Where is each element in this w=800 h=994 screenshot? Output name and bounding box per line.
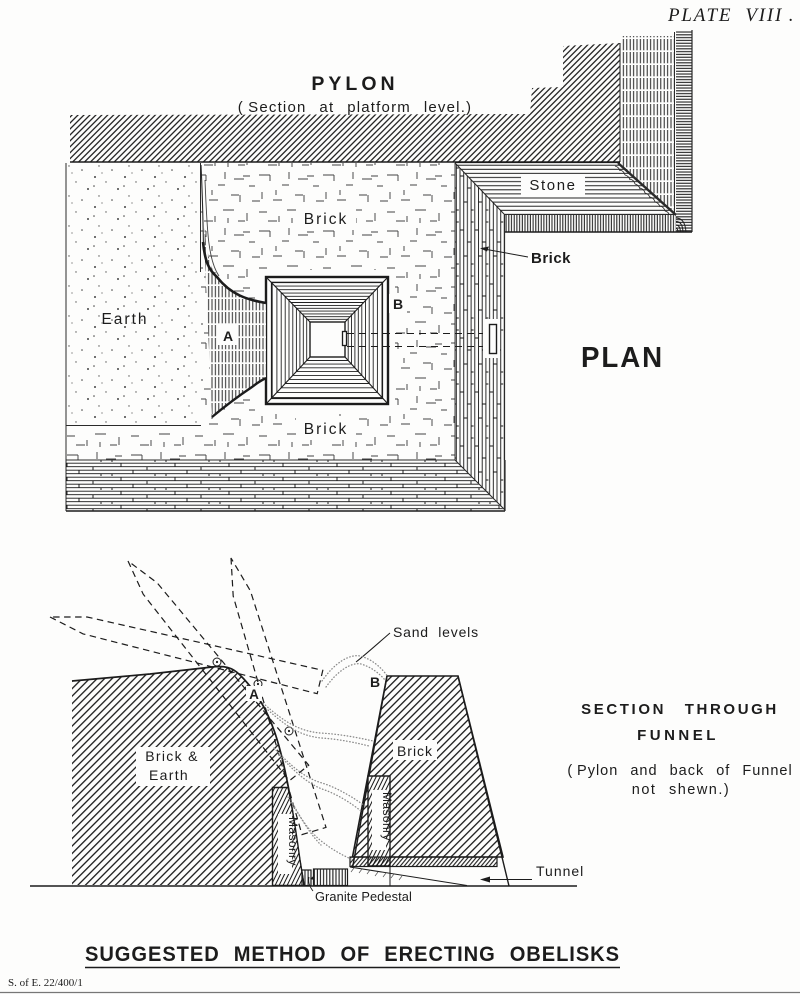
svg-text:( Pylon and back of Funnel: ( Pylon and back of Funnel [567,763,792,779]
svg-text:A: A [223,328,233,344]
svg-text:Masonry: Masonry [380,792,394,841]
svg-text:A: A [249,687,259,702]
svg-text:Brick: Brick [397,743,433,759]
svg-text:PLAN: PLAN [581,342,664,374]
svg-text:B: B [370,674,380,690]
svg-text:Tunnel: Tunnel [536,863,584,879]
svg-text:Granite Pedestal: Granite Pedestal [315,889,412,904]
svg-text:Masonry: Masonry [286,817,300,866]
svg-text:FUNNEL: FUNNEL [637,727,719,744]
svg-text:PYLON: PYLON [311,73,398,95]
svg-text:SECTION THROUGH: SECTION THROUGH [581,701,779,718]
svg-text:B: B [393,296,403,312]
svg-text:PLATE VIII .: PLATE VIII . [667,5,795,26]
svg-text:Brick: Brick [531,250,571,267]
svg-text:Earth: Earth [101,311,148,328]
svg-text:( Section at platform level.): ( Section at platform level.) [238,99,473,116]
svg-text:SUGGESTED METHOD OF ERECTING O: SUGGESTED METHOD OF ERECTING OBELISKS [85,942,620,966]
svg-text:Brick: Brick [304,421,348,438]
svg-text:Sand levels: Sand levels [393,624,479,640]
svg-text:Brick &: Brick & [145,748,198,764]
svg-text:Earth: Earth [149,767,189,783]
svg-text:Stone: Stone [529,177,576,194]
svg-text:Brick: Brick [304,211,348,228]
svg-text:not shewn.): not shewn.) [632,782,730,798]
svg-text:S. of E. 22/400/1: S. of E. 22/400/1 [8,977,83,989]
